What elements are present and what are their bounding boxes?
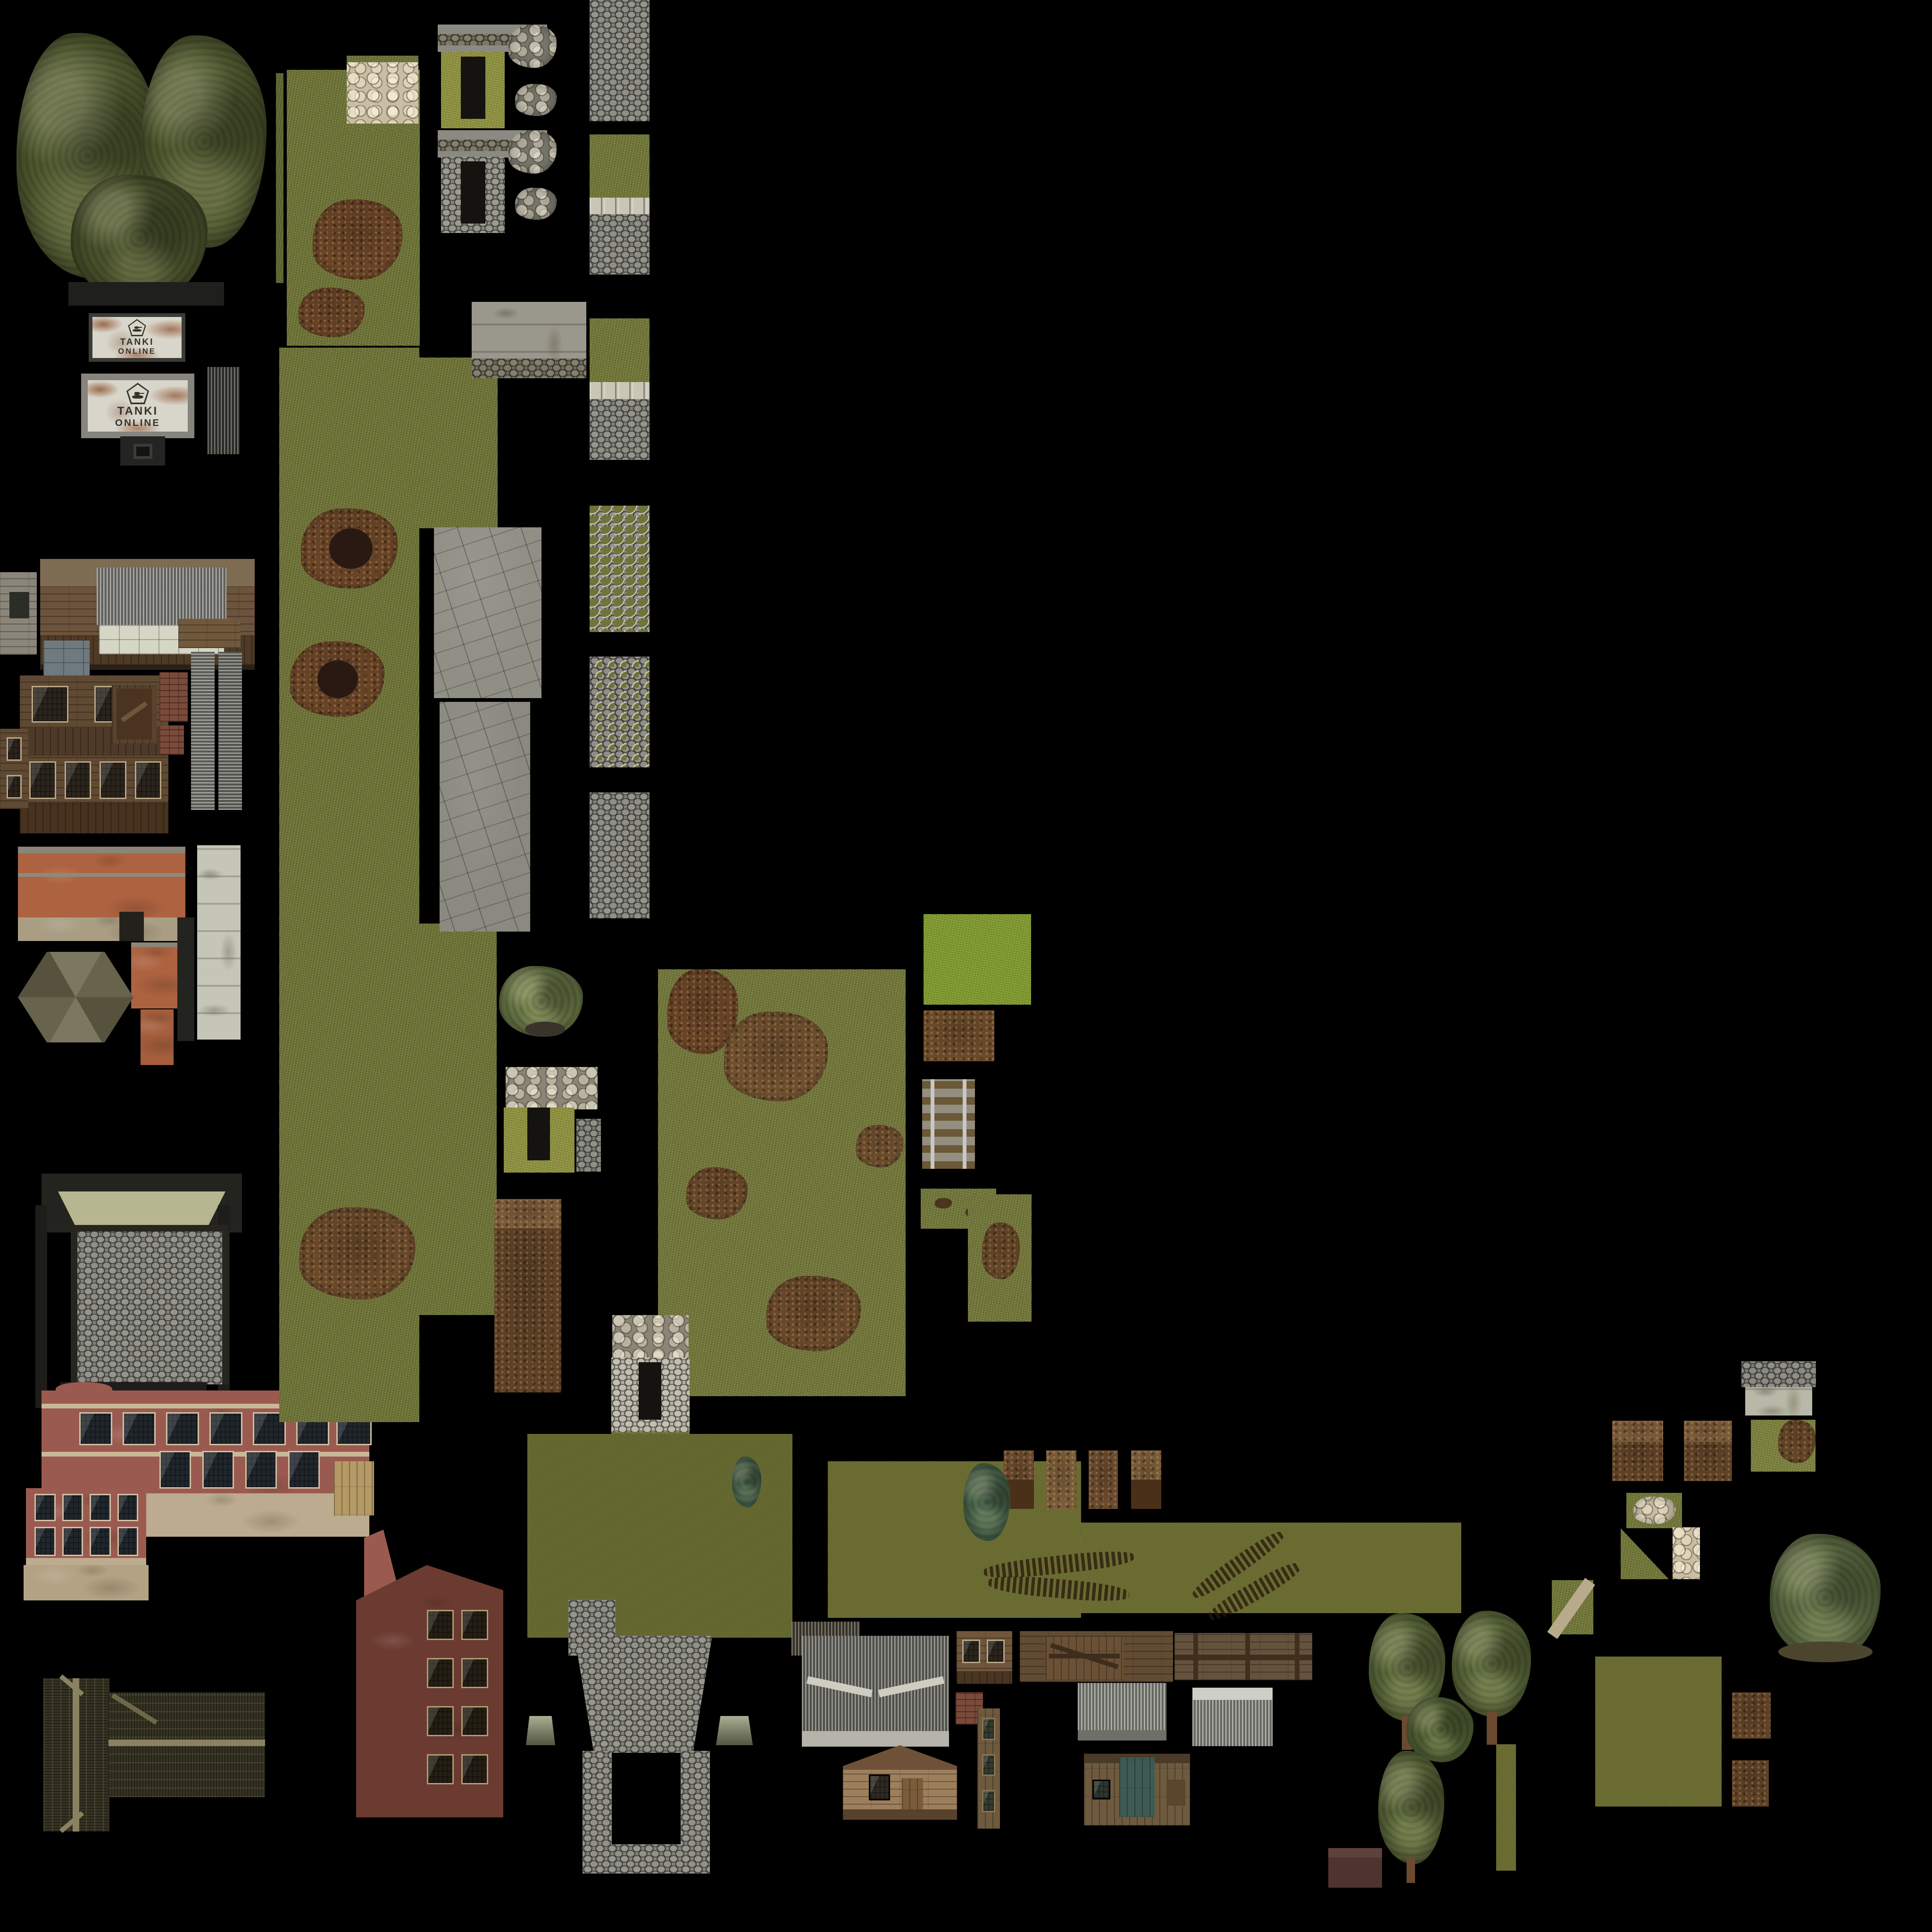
curve-corner-grass	[590, 506, 650, 632]
dirt-patch	[1778, 1420, 1815, 1463]
stand-hole-inner	[136, 447, 150, 456]
trench	[461, 161, 485, 224]
barn-wall-big-door	[1020, 1631, 1173, 1682]
brick-block-1	[159, 672, 188, 722]
dirt-patch	[766, 1276, 861, 1351]
curb-cobble	[590, 399, 650, 460]
dirt-tile-r2	[1684, 1421, 1732, 1481]
window	[90, 1494, 111, 1521]
grass-fringe-top	[347, 56, 418, 62]
curb-grass	[590, 134, 650, 198]
dirt-splat	[313, 200, 402, 280]
window	[209, 1412, 242, 1445]
dirt-tile-r1	[1612, 1421, 1663, 1481]
tank-body-icon	[132, 395, 143, 399]
rock-cluster	[1633, 1497, 1676, 1524]
gate-canopy	[42, 1174, 242, 1232]
grass-triangle	[1621, 1528, 1669, 1579]
grass-fringe-bottom	[347, 124, 418, 130]
dirt-patch	[982, 1223, 1020, 1279]
blue-metal-panel	[43, 641, 90, 677]
curb-stones	[590, 382, 650, 399]
tank-logo-plate	[129, 320, 145, 335]
teal-door	[1119, 1757, 1155, 1817]
tank-barrel-icon	[138, 327, 142, 328]
burn-crater-2	[290, 641, 384, 717]
gate-cobble-court	[71, 1225, 229, 1384]
metal-rib-columns	[191, 652, 243, 810]
dirt-patch	[856, 1125, 903, 1167]
striped-metal-plate	[208, 367, 240, 454]
dark-roof-horizontal	[108, 1692, 265, 1797]
rock-ledge-2	[612, 1315, 689, 1358]
grass-side-a	[419, 358, 498, 528]
beam-post	[1245, 1633, 1250, 1680]
dirt-patch	[686, 1167, 748, 1219]
plaster-skirt	[18, 917, 185, 941]
rib-col-a	[191, 652, 215, 810]
pale-path	[1547, 1578, 1595, 1639]
window	[461, 1754, 488, 1784]
stone-trench-square	[441, 157, 505, 233]
frame-top	[71, 1225, 229, 1232]
cornice	[131, 942, 177, 947]
ridge-y-bottom	[59, 1811, 84, 1833]
beam-post	[1295, 1633, 1299, 1680]
billboard-title: TANKI	[92, 337, 182, 347]
railway-track	[922, 1079, 975, 1169]
window	[34, 1527, 56, 1556]
window	[100, 761, 126, 799]
window	[461, 1706, 488, 1736]
dark-crate	[1328, 1848, 1382, 1888]
tank-barrel-icon	[139, 393, 144, 394]
grass-side-b	[419, 924, 497, 1315]
hexagonal-roof	[18, 950, 133, 1044]
billboard-sign-top: TANKIONLINE	[89, 313, 185, 362]
grass-right-big	[1595, 1657, 1722, 1807]
rail-line	[18, 873, 185, 877]
bright-grass-tile	[924, 914, 1031, 1005]
skirt-rubble	[24, 1565, 149, 1600]
window	[427, 1754, 454, 1784]
white-top-band	[1192, 1688, 1273, 1700]
ground-shadow	[1778, 1641, 1873, 1662]
conifer-bush	[1770, 1534, 1881, 1661]
stone-gate-top	[575, 1636, 712, 1753]
rock-debris-1	[508, 25, 557, 68]
base-band	[1078, 1730, 1166, 1740]
cobble-concrete-piece	[1741, 1361, 1816, 1416]
wood-wall-small	[0, 729, 28, 809]
wood-gable-house	[843, 1745, 957, 1820]
window	[869, 1774, 890, 1800]
stone-mini-column	[576, 1119, 601, 1172]
concrete-grime-strip	[197, 845, 241, 1040]
tank-logo-icon	[128, 319, 146, 336]
curb-cobble	[590, 214, 650, 275]
frame-right	[222, 1225, 229, 1384]
wooden-door	[334, 1461, 374, 1516]
ridge-horizontal	[108, 1740, 265, 1746]
tank-body-icon	[133, 329, 141, 332]
red-building-small	[26, 1488, 146, 1566]
rock-ledge-1	[506, 1067, 598, 1109]
dirt-top-light	[494, 1199, 561, 1228]
window	[135, 761, 162, 799]
dirt-stack	[494, 1199, 561, 1392]
window	[123, 1412, 156, 1445]
mud-mark	[935, 1198, 952, 1208]
lamp-right	[716, 1716, 753, 1745]
window	[62, 1527, 83, 1556]
grass-right-strip	[1496, 1744, 1516, 1871]
moss-strip	[276, 73, 283, 283]
rock-pile-small	[1673, 1527, 1700, 1579]
field-grass-patchwork	[658, 969, 906, 1396]
skirt	[957, 1671, 1012, 1684]
plank-column	[977, 1708, 1000, 1829]
grass-dirt-right	[968, 1194, 1032, 1322]
window	[166, 1412, 199, 1445]
hatch	[1166, 1780, 1185, 1806]
dirt-tile-r3	[1732, 1692, 1771, 1739]
cobble-band	[1741, 1361, 1816, 1387]
track-marks-2	[1174, 1554, 1302, 1611]
track-marks-1	[983, 1551, 1139, 1605]
crater-core	[317, 660, 358, 698]
window	[427, 1658, 454, 1688]
dirt-mound-4	[1131, 1450, 1161, 1509]
rock-debris-3	[508, 130, 557, 174]
window	[461, 1658, 488, 1688]
window	[32, 686, 68, 723]
grass-curb-cobble-b	[590, 318, 650, 460]
rock-pile-inset	[347, 56, 418, 130]
trench	[527, 1108, 550, 1160]
rubble-base	[472, 358, 586, 378]
window	[202, 1451, 234, 1489]
window	[987, 1640, 1005, 1663]
dirt-mound-3	[1089, 1450, 1118, 1509]
crater-core	[329, 528, 373, 569]
ridge-y-top	[59, 1674, 84, 1696]
hip-edge	[111, 1693, 158, 1725]
burn-crater-1	[301, 508, 398, 589]
leafy-tree-d	[1378, 1751, 1444, 1864]
dirt-top-light	[1684, 1421, 1732, 1442]
door-dark	[119, 912, 144, 941]
curb-grass	[590, 318, 650, 382]
window	[117, 1527, 139, 1556]
tread-bar	[988, 1573, 1130, 1604]
window	[159, 1451, 191, 1489]
concrete-slab-1	[434, 527, 541, 698]
brick-block-2	[159, 725, 184, 755]
billboard-title: TANKI	[88, 405, 188, 417]
window	[427, 1706, 454, 1736]
ridge-vertical	[73, 1678, 79, 1832]
house-piece-two-windows	[957, 1631, 1012, 1684]
gray-wall-low	[472, 302, 586, 378]
grass-dirt-corner	[1751, 1420, 1815, 1472]
corrugated-roof-long	[97, 567, 226, 625]
crate-top	[1328, 1848, 1382, 1857]
lamp-left	[526, 1716, 555, 1745]
trench	[461, 57, 485, 119]
orange-wall-long	[18, 847, 185, 941]
grass-trench-2	[504, 1108, 575, 1173]
gate-column-left	[35, 1205, 47, 1408]
billboard-subtitle: ONLINE	[92, 347, 182, 356]
window	[90, 1527, 111, 1556]
window	[982, 1754, 995, 1776]
white-cobble-trench	[611, 1357, 690, 1442]
small-bush	[732, 1457, 761, 1507]
corrugated-hip-roof	[802, 1636, 949, 1747]
concrete-slab-2	[440, 702, 530, 932]
red-tower	[356, 1565, 503, 1817]
curb-stones	[590, 198, 650, 215]
corrugated-wall-2	[1192, 1688, 1273, 1746]
parapet-bump-left	[56, 1382, 112, 1396]
grass-path-diagonal	[1552, 1580, 1593, 1634]
skirt	[843, 1809, 957, 1820]
window	[34, 1494, 56, 1521]
shed-teal-door	[1084, 1754, 1190, 1825]
window	[62, 1494, 83, 1521]
dirt-scratch	[300, 1207, 415, 1299]
window	[982, 1718, 995, 1740]
window	[461, 1610, 488, 1640]
trench	[639, 1362, 661, 1420]
grass-curb-cobble-a	[590, 134, 650, 275]
billboard-stand	[120, 436, 165, 466]
barn-door-panel	[112, 685, 157, 744]
dark-post	[177, 917, 194, 1041]
dirt-square-center	[924, 1010, 994, 1061]
gable-shade	[843, 1745, 957, 1770]
concrete-band	[1745, 1387, 1812, 1416]
mound-shadow	[1131, 1480, 1161, 1509]
dirt-top-light	[1612, 1421, 1663, 1442]
dirt-tile-r4	[1732, 1760, 1769, 1807]
window	[29, 761, 56, 799]
orange-wall-small-2	[141, 1009, 174, 1065]
trunk	[1487, 1712, 1497, 1745]
small-window	[9, 592, 29, 618]
billboard-support-beam	[68, 282, 224, 306]
cobble-tile-b	[590, 792, 650, 918]
window	[7, 737, 22, 761]
dirt-patch	[724, 1012, 828, 1101]
rib-col-b	[218, 652, 242, 810]
window	[65, 761, 92, 799]
dark-roof-vertical	[43, 1678, 109, 1832]
billboard-sign-framed: TANKIONLINE	[81, 374, 194, 438]
stone-u-structure	[583, 1751, 710, 1874]
rocks-in-grass	[1626, 1493, 1682, 1528]
billboard-plate: TANKIONLINE	[88, 380, 188, 432]
texture-atlas-canvas: TANKIONLINETANKIONLINE	[0, 0, 1932, 1932]
cornice	[18, 847, 185, 853]
trunk	[1407, 1857, 1415, 1883]
rock-debris-2	[515, 84, 557, 116]
billboard-subtitle: ONLINE	[88, 418, 188, 429]
curve-corner-cobble	[590, 657, 650, 767]
ridge-beam-left	[807, 1676, 873, 1698]
window	[117, 1494, 139, 1521]
wall-with-beams	[1174, 1633, 1312, 1680]
corrugated-wall-1	[1078, 1683, 1166, 1740]
gray-wall-window	[0, 572, 37, 655]
window	[288, 1451, 320, 1489]
window	[1092, 1780, 1110, 1799]
bush-on-pedestal	[499, 966, 583, 1037]
dirt-splat-2	[299, 288, 365, 337]
wood-block	[178, 619, 241, 648]
u-bottom	[583, 1844, 710, 1874]
leafy-tree-b	[1452, 1611, 1531, 1717]
tank-logo-plate	[128, 384, 147, 402]
ridge-beam-right	[878, 1676, 944, 1698]
tank-logo-icon	[126, 383, 149, 404]
frame-left	[71, 1225, 77, 1384]
window	[7, 775, 22, 799]
rock-debris-4	[515, 188, 557, 220]
eave-band	[802, 1731, 949, 1747]
plank-skirt	[20, 802, 168, 833]
window	[427, 1610, 454, 1640]
cobble-tile-a	[590, 0, 650, 121]
dirt-mound-2	[1046, 1450, 1076, 1509]
window	[79, 1412, 112, 1445]
grass-trench-square	[441, 52, 505, 128]
window	[982, 1790, 995, 1812]
pedestal-pot	[525, 1022, 565, 1037]
window	[245, 1451, 277, 1489]
orange-wall-small-1	[131, 942, 177, 1008]
billboard-plate: TANKIONLINE	[92, 317, 182, 358]
window	[962, 1640, 980, 1663]
teal-bush	[963, 1463, 1010, 1541]
beam-post	[1193, 1633, 1198, 1680]
